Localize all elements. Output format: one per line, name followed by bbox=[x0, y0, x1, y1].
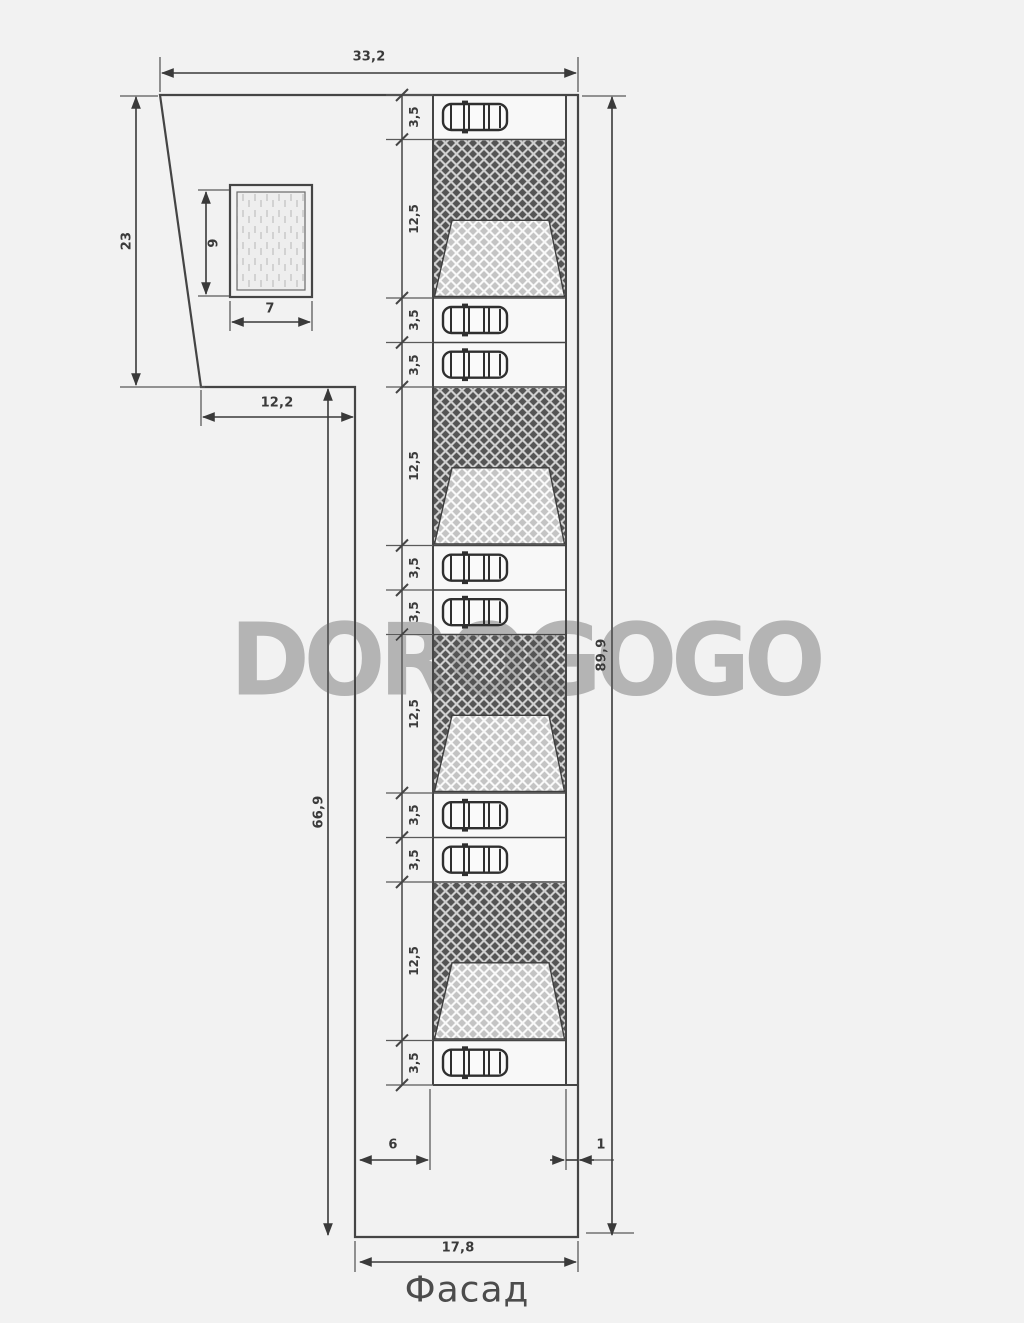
strip-cell-label: 3,5 bbox=[407, 354, 421, 375]
ramp-cell bbox=[434, 141, 565, 298]
dim-label-offset-left: 6 bbox=[388, 1138, 397, 1153]
dim-label-offset-right: 1 bbox=[596, 1138, 605, 1153]
dim-label-rect-height: 9 bbox=[207, 238, 222, 247]
ramp-cell bbox=[434, 388, 565, 545]
outbuilding bbox=[230, 185, 312, 297]
car-icon bbox=[443, 1046, 507, 1079]
strip-cell-label: 3,5 bbox=[407, 106, 421, 127]
strip-cell-label: 12,5 bbox=[407, 204, 421, 234]
car-icon bbox=[443, 843, 507, 876]
car-icon bbox=[443, 304, 507, 337]
watermark: DOROGOGO bbox=[230, 606, 796, 714]
strip-cell-label: 3,5 bbox=[407, 557, 421, 578]
dim-label-step-width: 12,2 bbox=[261, 396, 294, 411]
dim-label-bottom-width: 17,8 bbox=[442, 1241, 475, 1256]
dim-label-left-lower: 66,9 bbox=[312, 796, 327, 829]
car-icon bbox=[443, 799, 507, 832]
parking-strip bbox=[433, 95, 578, 1085]
strip-cell-label: 12,5 bbox=[407, 451, 421, 481]
dim-label-left-upper: 23 bbox=[120, 232, 135, 251]
ramp-cell bbox=[434, 883, 565, 1040]
facade-site-plan: 33,2 23 12,2 66,9 89,9 9 7 6 1 17,8 3,5 … bbox=[0, 0, 1024, 1323]
dim-label-top-width: 33,2 bbox=[353, 50, 386, 65]
car-icon bbox=[443, 101, 507, 134]
strip-cell-label: 3,5 bbox=[407, 1052, 421, 1073]
strip-cell-label: 3,5 bbox=[407, 849, 421, 870]
drawing-title: Фасад bbox=[405, 1270, 530, 1311]
strip-cell-label: 3,5 bbox=[407, 309, 421, 330]
car-icon bbox=[443, 348, 507, 381]
strip-cell-label: 3,5 bbox=[407, 804, 421, 825]
dim-label-rect-width: 7 bbox=[265, 302, 274, 317]
car-icon bbox=[443, 551, 507, 584]
strip-cell-label: 12,5 bbox=[407, 946, 421, 976]
